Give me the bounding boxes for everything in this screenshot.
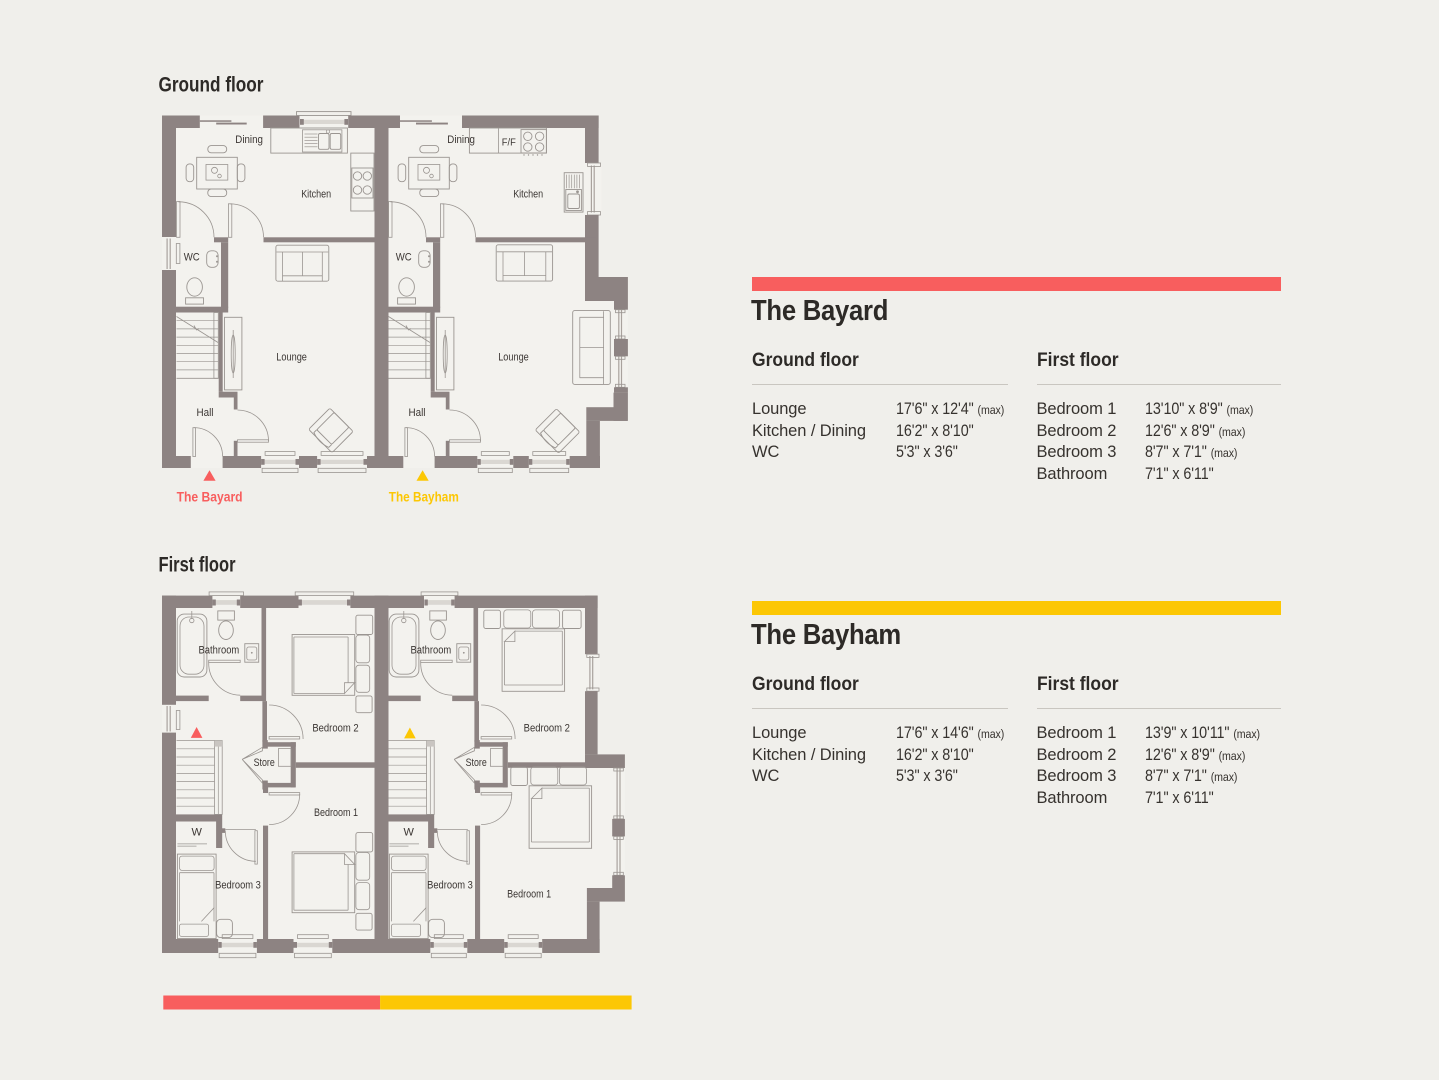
svg-text:Lounge: Lounge xyxy=(276,352,307,364)
svg-text:First floor: First floor xyxy=(159,552,236,576)
svg-text:Dining: Dining xyxy=(447,134,475,146)
svg-text:WC: WC xyxy=(184,252,200,264)
svg-text:Bedroom 3: Bedroom 3 xyxy=(427,880,473,892)
svg-text:Bathroom: Bathroom xyxy=(411,645,452,657)
svg-text:Hall: Hall xyxy=(409,407,426,419)
svg-text:W: W xyxy=(192,827,203,839)
svg-text:Lounge: Lounge xyxy=(498,352,529,364)
svg-text:Bathroom: Bathroom xyxy=(199,645,240,657)
svg-text:W: W xyxy=(404,827,415,839)
svg-text:Bedroom 2: Bedroom 2 xyxy=(524,723,570,735)
svg-text:F/F: F/F xyxy=(502,137,516,148)
svg-text:The Bayard: The Bayard xyxy=(177,489,243,504)
svg-text:Ground floor: Ground floor xyxy=(159,73,264,97)
svg-text:Kitchen: Kitchen xyxy=(513,189,543,201)
svg-text:The Bayham: The Bayham xyxy=(389,489,459,504)
svg-text:Store: Store xyxy=(254,757,275,769)
svg-text:Hall: Hall xyxy=(197,407,214,419)
svg-text:Store: Store xyxy=(466,757,487,769)
svg-text:Bedroom 3: Bedroom 3 xyxy=(215,880,261,892)
svg-text:Dining: Dining xyxy=(235,134,263,146)
svg-text:Kitchen: Kitchen xyxy=(301,189,331,201)
svg-text:Bedroom 2: Bedroom 2 xyxy=(312,723,358,735)
svg-text:Bedroom 1: Bedroom 1 xyxy=(314,807,358,819)
svg-text:WC: WC xyxy=(396,252,412,264)
svg-text:Bedroom 1: Bedroom 1 xyxy=(507,889,551,901)
